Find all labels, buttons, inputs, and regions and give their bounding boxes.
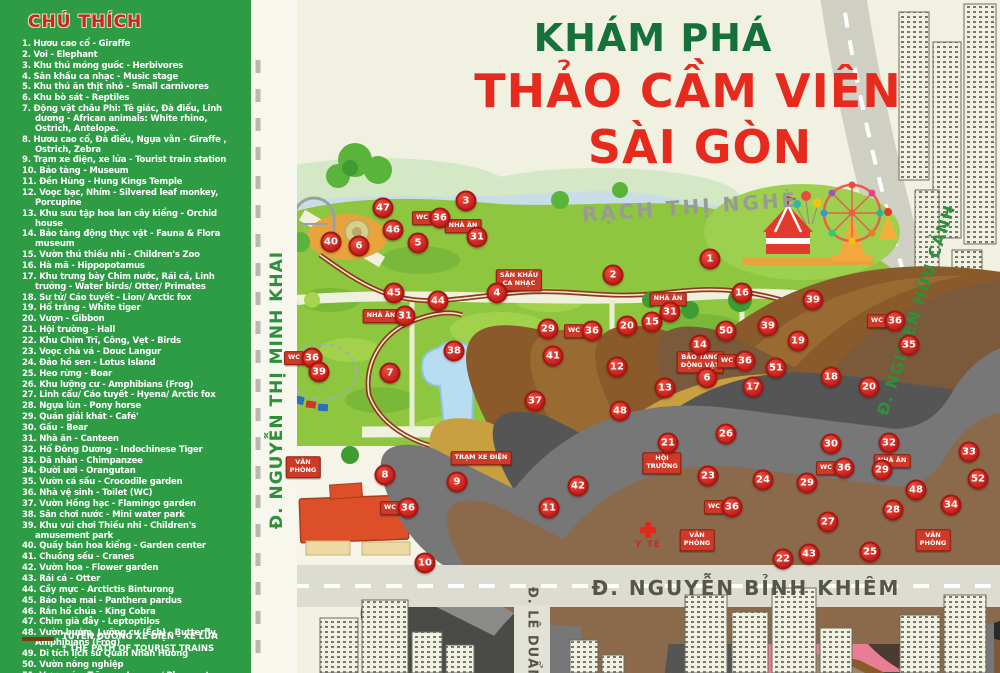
- map-marker-29: 29: [872, 460, 893, 481]
- map-marker-36: 36: [722, 497, 743, 518]
- map-marker-18: 18: [821, 367, 842, 388]
- map-marker-39: 39: [758, 316, 779, 337]
- legend-item-36: 36. Nhà vệ sinh - Toilet (WC): [22, 489, 243, 499]
- legend-item-8: 8. Hươu cao cổ, Đà điểu, Ngựa vằn - Gira…: [22, 136, 243, 156]
- map-sign: TRẠM XE ĐIỆN: [451, 451, 512, 465]
- map-marker-1: 1: [700, 249, 721, 270]
- map-marker-36: 36: [885, 311, 906, 332]
- medical-station: Y TẾ: [635, 522, 661, 550]
- map-marker-43: 43: [799, 544, 820, 565]
- map-marker-48: 48: [906, 480, 927, 501]
- map-marker-11: 11: [539, 498, 560, 519]
- legend-item-26: 26. Khu lưỡng cư - Amphibians (Frog): [22, 381, 243, 391]
- map-marker-35: 35: [899, 335, 920, 356]
- map-marker-13: 13: [655, 378, 676, 399]
- medical-label: Y TẾ: [635, 540, 661, 550]
- map-marker-47: 47: [373, 198, 394, 219]
- legend-item-7: 7. Động vật châu Phi: Tê giác, Đà điểu, …: [22, 105, 243, 135]
- legend-item-28: 28. Ngựa lùn - Pony horse: [22, 402, 243, 412]
- map-marker-19: 19: [788, 331, 809, 352]
- legend-item-18: 18. Sư tử/ Cáo tuyết - Lion/ Arctic fox: [22, 294, 243, 304]
- map-marker-5: 5: [408, 233, 429, 254]
- map-marker-22: 22: [773, 549, 794, 570]
- legend-item-42: 42. Vườn hoa - Flower garden: [22, 564, 243, 574]
- map-marker-52: 52: [968, 469, 989, 490]
- map-marker-50: 50: [716, 321, 737, 342]
- map-marker-33: 33: [959, 442, 980, 463]
- legend-item-39: 39. Khu vui chơi Thiếu nhi - Children's …: [22, 522, 243, 542]
- zoo-map-poster: KHÁM PHÁ THẢO CẦM VIÊN SÀI GÒN RẠCH THỊ …: [0, 0, 1000, 673]
- map-marker-36: 36: [398, 498, 419, 519]
- train-path-legend: TUYẾN ĐƯỜNG XE ĐIỆN - XE LỬA * THE PATH …: [22, 632, 237, 655]
- map-marker-48: 48: [610, 401, 631, 422]
- legend-item-43: 43. Rái cá - Otter: [22, 575, 243, 585]
- map-marker-2: 2: [603, 265, 624, 286]
- map-marker-36: 36: [582, 321, 603, 342]
- legend-item-11: 11. Đền Hùng - Hung Kings Temple: [22, 178, 243, 188]
- map-sign: VĂN PHÒNG: [286, 456, 321, 478]
- map-marker-6: 6: [697, 368, 718, 389]
- map-marker-17: 17: [743, 377, 764, 398]
- poster-title-line2: THẢO CẦM VIÊN: [474, 64, 901, 118]
- map-marker-44: 44: [428, 291, 449, 312]
- legend-item-23: 23. Voọc chà vá - Douc Langur: [22, 348, 243, 358]
- street-nguyen-thi-minh-khai: Đ. NGUYỄN THỊ MINH KHAI: [267, 251, 287, 529]
- map-marker-12: 12: [607, 357, 628, 378]
- legend-item-4: 4. Sân khấu ca nhạc - Music stage: [22, 73, 243, 83]
- street-nguyen-huu-canh: Đ. NGUYỄN HỮU CẢNH: [873, 202, 959, 417]
- map-marker-31: 31: [395, 306, 416, 327]
- legend-item-50: 50. Vườn nông nghiệp: [22, 661, 243, 671]
- legend-item-32: 32. Hổ Đông Dương - Indochinese Tiger: [22, 446, 243, 456]
- map-marker-41: 41: [543, 346, 564, 367]
- legend-item-15: 15. Vườn thú thiếu nhi - Children's Zoo: [22, 251, 243, 261]
- map-marker-20: 20: [617, 316, 638, 337]
- map-marker-26: 26: [716, 424, 737, 445]
- legend-item-44: 44. Cầy mực - Arctictis Binturong: [22, 586, 243, 596]
- map-marker-51: 51: [766, 358, 787, 379]
- map-marker-36: 36: [430, 208, 451, 229]
- map-marker-36: 36: [834, 458, 855, 479]
- legend-item-19: 19. Hổ trắng - White tiger: [22, 304, 243, 314]
- map-marker-24: 24: [753, 470, 774, 491]
- map-sign: VĂN PHÒNG: [916, 529, 951, 551]
- legend-item-3: 3. Khu thú móng guốc - Herbivores: [22, 62, 243, 72]
- map-marker-31: 31: [660, 302, 681, 323]
- legend-item-9: 9. Trạm xe điện, xe lửa - Tourist train …: [22, 156, 243, 166]
- legend-sidebar: CHÚ THÍCH 1. Hươu cao cổ - Giraffe2. Voi…: [0, 0, 251, 673]
- legend-item-31: 31. Nhà ăn - Canteen: [22, 435, 243, 445]
- map-marker-14: 14: [690, 335, 711, 356]
- legend-item-14: 14. Bảo tàng động thực vật - Fauna & Flo…: [22, 230, 243, 250]
- legend-item-21: 21. Hội trường - Hall: [22, 326, 243, 336]
- map-marker-31: 31: [467, 227, 488, 248]
- map-marker-21: 21: [658, 433, 679, 454]
- map-marker-40: 40: [321, 232, 342, 253]
- map-marker-46: 46: [383, 220, 404, 241]
- train-path-label-vi: TUYẾN ĐƯỜNG XE ĐIỆN - XE LỬA: [62, 632, 218, 643]
- map-marker-36: 36: [735, 351, 756, 372]
- map-marker-4: 4: [487, 283, 508, 304]
- legend-title: CHÚ THÍCH: [28, 12, 243, 32]
- legend-item-38: 38. Sân chơi nước - Mini water park: [22, 511, 243, 521]
- legend-item-46: 46. Rắn hổ chúa - King Cobra: [22, 608, 243, 618]
- legend-item-12: 12. Voọc bạc, Nhím - Silvered leaf monke…: [22, 189, 243, 209]
- legend-item-24: 24. Đảo hồ sen - Lotus Island: [22, 359, 243, 369]
- map-marker-23: 23: [698, 466, 719, 487]
- poster-title-line3: SÀI GÒN: [588, 120, 812, 174]
- map-marker-7: 7: [380, 363, 401, 384]
- poster-title-line1: KHÁM PHÁ: [534, 16, 773, 60]
- map-marker-29: 29: [797, 473, 818, 494]
- legend-list: 1. Hươu cao cổ - Giraffe2. Voi - Elephan…: [22, 40, 243, 673]
- train-path-label-en: * THE PATH OF TOURIST TRAINS: [62, 644, 218, 655]
- train-path-line-swatch: [22, 637, 54, 641]
- map-marker-45: 45: [384, 283, 405, 304]
- legend-item-33: 33. Dã nhân - Chimpanzee: [22, 457, 243, 467]
- map-marker-16: 16: [732, 283, 753, 304]
- map-marker-6: 6: [349, 236, 370, 257]
- map-marker-20: 20: [859, 377, 880, 398]
- legend-item-34: 34. Đười ươi - Orangutan: [22, 467, 243, 477]
- map-marker-25: 25: [860, 542, 881, 563]
- map-sign: VĂN PHÒNG: [680, 529, 715, 551]
- map-marker-38: 38: [444, 341, 465, 362]
- street-nguyen-binh-khiem: Đ. NGUYỄN BỈNH KHIÊM: [592, 576, 901, 600]
- legend-item-35: 35. Vườn cá sấu - Crocodile garden: [22, 478, 243, 488]
- map-marker-37: 37: [525, 391, 546, 412]
- legend-item-41: 41. Chuồng sếu - Cranes: [22, 553, 243, 563]
- legend-item-2: 2. Voi - Elephant: [22, 51, 243, 61]
- legend-item-20: 20. Vượn - Gibbon: [22, 315, 243, 325]
- legend-item-17: 17. Khu trưng bày Chim nước, Rái cá, Lin…: [22, 273, 243, 293]
- map-marker-30: 30: [821, 434, 842, 455]
- legend-item-22: 22. Khu Chim Trĩ, Công, Vẹt - Birds: [22, 337, 243, 347]
- legend-item-45: 45. Báo hoa mai - Panthera pardus: [22, 597, 243, 607]
- legend-item-40: 40. Quầy bán hoa kiểng - Garden center: [22, 542, 243, 552]
- map-marker-8: 8: [375, 465, 396, 486]
- street-le-duan: Đ. LÊ DUẨN: [525, 587, 540, 673]
- legend-item-25: 25. Heo rừng - Boar: [22, 370, 243, 380]
- map-marker-34: 34: [941, 495, 962, 516]
- map-marker-27: 27: [818, 512, 839, 533]
- map-marker-29: 29: [538, 319, 559, 340]
- map-sign: HỘI TRƯỜNG: [642, 452, 681, 474]
- legend-item-5: 5. Khu thú ăn thịt nhỏ - Small carnivore…: [22, 83, 243, 93]
- map-marker-3: 3: [456, 191, 477, 212]
- legend-item-16: 16. Hà mã - Hippopotamus: [22, 262, 243, 272]
- legend-item-13: 13. Khu sưu tập hoa lan cây kiểng - Orch…: [22, 210, 243, 230]
- map-marker-9: 9: [447, 472, 468, 493]
- legend-item-6: 6. Khu bò sát - Reptiles: [22, 94, 243, 104]
- river-label: RẠCH THỊ NGHÈ: [581, 187, 799, 226]
- legend-item-27: 27. Linh cẩu/ Cáo tuyết - Hyena/ Arctic …: [22, 391, 243, 401]
- map-marker-39: 39: [803, 290, 824, 311]
- map-marker-39: 39: [309, 362, 330, 383]
- red-cross-icon: [640, 522, 656, 538]
- legend-item-1: 1. Hươu cao cổ - Giraffe: [22, 40, 243, 50]
- legend-item-29: 29. Quán giải khát - Café': [22, 413, 243, 423]
- map-marker-10: 10: [415, 553, 436, 574]
- map-marker-28: 28: [883, 500, 904, 521]
- legend-item-30: 30. Gấu - Bear: [22, 424, 243, 434]
- legend-item-47: 47. Chim già đẫy - Leptoptilos: [22, 618, 243, 628]
- map-marker-42: 42: [568, 476, 589, 497]
- legend-item-37: 37. Vườn Hồng hạc - Flamingo garden: [22, 500, 243, 510]
- map-marker-32: 32: [879, 433, 900, 454]
- legend-item-10: 10. Bảo tàng - Museum: [22, 167, 243, 177]
